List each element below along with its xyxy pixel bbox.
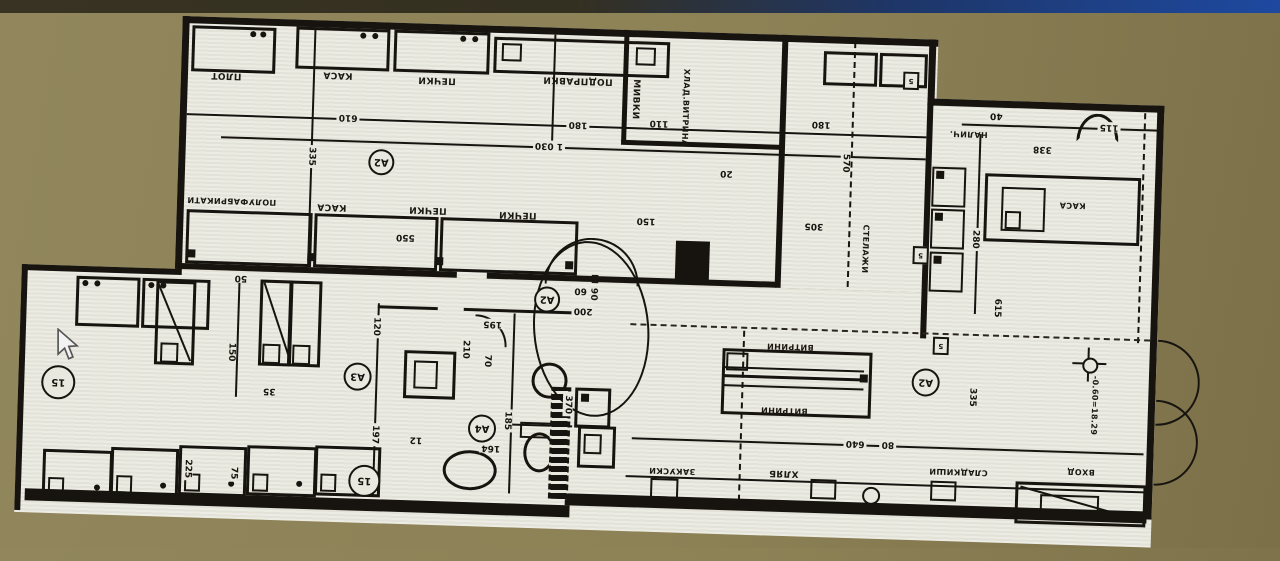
wall-mark <box>860 374 868 382</box>
room-label: КАСА <box>323 69 353 80</box>
dim-text: 20 <box>718 168 735 179</box>
dim-text: 50 <box>232 273 249 284</box>
room-label: ВИТРИНИ <box>767 341 814 351</box>
room-label: КАСА <box>1059 201 1086 211</box>
wall-tag: 5 <box>912 246 929 264</box>
room-label: ХЛЯБ <box>769 468 799 479</box>
room-label: ПЛОТ <box>211 70 242 81</box>
sink <box>413 360 438 389</box>
dim-text: 185 <box>502 409 513 432</box>
dim-text: 370 <box>562 393 573 416</box>
shaft <box>675 241 710 284</box>
dim-text: 60 <box>572 285 589 296</box>
dim-text: 615 <box>992 297 1003 320</box>
dim-text: 40 <box>988 110 1005 121</box>
counter <box>185 209 313 267</box>
dim-text: 335 <box>967 386 978 409</box>
dim-text: 35 <box>261 386 278 397</box>
dim-text: 150 <box>226 340 237 363</box>
wall-mark <box>435 257 443 265</box>
wall-tag: 5 <box>933 337 950 355</box>
table-tag <box>48 477 65 495</box>
counter <box>313 213 439 271</box>
dim-text: 570 <box>840 152 851 175</box>
dim-text: 70 <box>482 353 493 370</box>
dim-text: 225 <box>182 457 193 480</box>
dim-text: 197 <box>369 423 380 446</box>
dim-text: 180 <box>566 119 589 130</box>
wall-mark <box>936 171 944 179</box>
dim-text: 115 <box>1098 122 1121 133</box>
room-label: КАСА <box>317 201 347 212</box>
table-tag <box>116 475 133 493</box>
room-label: СТЕЛАЖИ <box>860 224 871 273</box>
bench-end <box>160 342 179 363</box>
monitor-top-edge <box>0 0 1280 13</box>
mouse-cursor <box>55 328 79 360</box>
appliance <box>636 47 657 66</box>
dim-text: 12 <box>407 434 424 445</box>
table-tag <box>320 474 337 492</box>
wall-tag: 5 <box>903 72 920 90</box>
wall-mark <box>935 213 943 221</box>
room-label: ВИТРИНИ <box>761 405 808 415</box>
dim-text: 305 <box>802 221 825 232</box>
room-label: ПЕЧКИ <box>409 204 447 215</box>
dim-text: 640 <box>844 438 867 449</box>
entry-counter-inner <box>1040 494 1100 518</box>
dim-text: 180 <box>810 119 833 130</box>
dim-text: 280 <box>970 228 981 251</box>
wall-mark <box>933 256 941 264</box>
floor-plan-sheet: ПЛОТ КАСА ПЕЧКИ ПОДПРАВКИ 610 180 1 030 … <box>9 8 1185 560</box>
dim-text: 75 <box>228 465 239 482</box>
wall-mark <box>187 249 195 257</box>
dim-text: 110 <box>648 118 671 129</box>
dim-text: 210 <box>460 338 471 361</box>
room-label: ВХОД <box>1067 467 1095 477</box>
bench-end <box>292 345 311 366</box>
register <box>1005 211 1022 229</box>
dim-text: 550 <box>394 232 417 243</box>
counter-tag <box>650 478 679 499</box>
wall-mark <box>307 253 315 261</box>
dim-text: 610 <box>337 112 360 123</box>
dim-text: 338 <box>1031 144 1054 155</box>
counter-tag <box>810 479 837 500</box>
room-label: НАЛИЧ. <box>949 129 987 139</box>
dim-text: 120 <box>371 315 382 338</box>
dim-text: 200 <box>572 305 595 316</box>
vitrina-tag <box>726 352 749 371</box>
dim-text: 335 <box>306 145 317 168</box>
room-label: СЛАДКИШИ <box>929 467 988 478</box>
dim-text: 164 <box>479 442 502 453</box>
room-label: ЗАКУСКИ <box>649 466 696 476</box>
screen-photo: { "scene": { "description": "Photographe… <box>0 0 1280 548</box>
table-tag <box>252 473 269 491</box>
elevation-text: -0.60=18.29 <box>1089 376 1100 436</box>
bench-end <box>262 344 281 365</box>
door-leaf <box>583 434 602 455</box>
counter <box>823 51 878 87</box>
dim-text: 150 <box>634 215 657 226</box>
dim-text: 195 <box>481 318 504 329</box>
dim-text: 1 030 <box>533 140 565 151</box>
appliance <box>502 43 523 62</box>
room-label: ПЕЧКИ <box>418 74 456 85</box>
room-label: МИВКИ <box>630 79 641 120</box>
counter-tag <box>930 481 957 502</box>
dim-text: 80 <box>880 439 897 450</box>
